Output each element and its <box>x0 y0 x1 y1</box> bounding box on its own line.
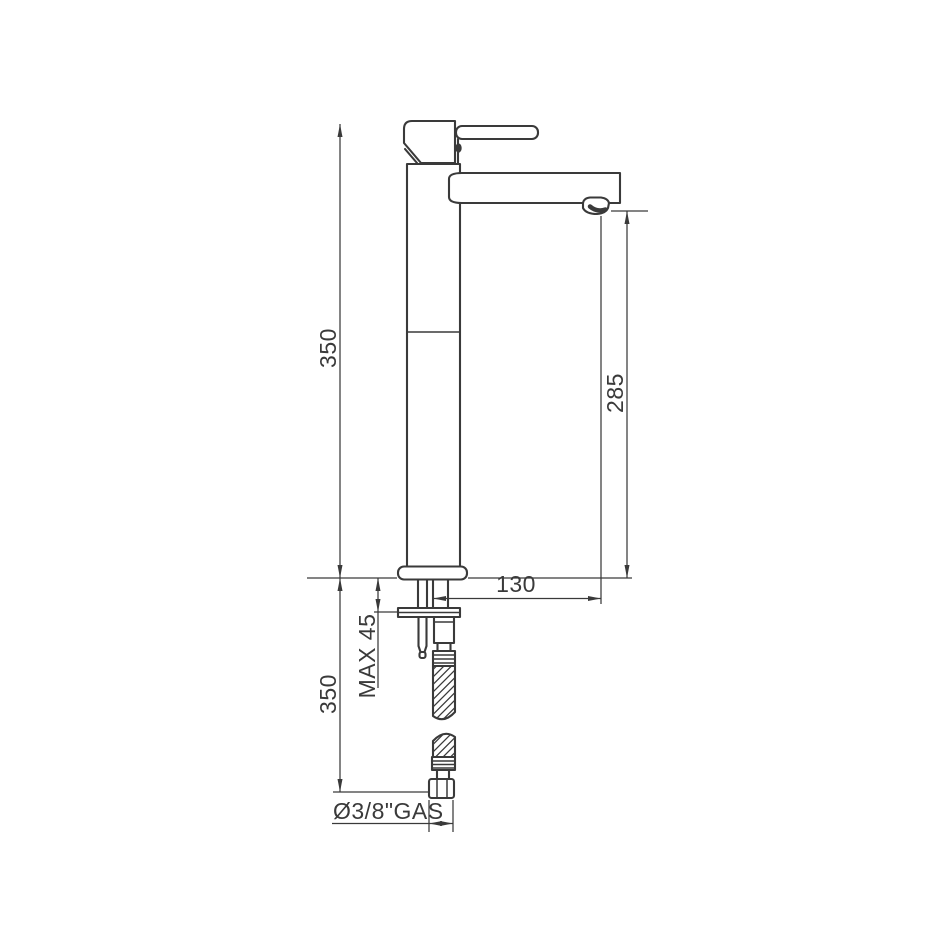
faucet-technical-drawing: 350 350 MAX 45 285 130 <box>0 0 950 950</box>
handle-assembly <box>404 121 538 164</box>
technical-drawing-page: 350 350 MAX 45 285 130 <box>0 0 950 950</box>
dim-label-outlet-height: 285 <box>602 373 628 413</box>
dim-label-thread: Ø3/8"GAS <box>333 798 444 824</box>
base-flange <box>398 567 467 580</box>
dimensions: 350 350 MAX 45 285 130 <box>307 124 648 832</box>
dim-label-spout-reach: 130 <box>496 571 536 597</box>
handle-lever <box>456 126 538 139</box>
supply-hose <box>429 617 455 798</box>
hose-connector-block <box>434 617 454 643</box>
dim-outlet-height: 285 <box>602 211 648 578</box>
handle-screw-dot <box>455 143 461 152</box>
dim-label-max-thickness: MAX 45 <box>354 614 380 699</box>
dim-label-hose-length: 350 <box>315 674 341 714</box>
dim-max-thickness: MAX 45 <box>354 578 398 698</box>
connector-step <box>438 643 451 651</box>
stud-tip <box>420 652 426 658</box>
braided-hose-lower <box>433 734 455 757</box>
braided-hose-upper <box>433 666 455 719</box>
dim-connection-thread: Ø3/8"GAS <box>332 798 453 832</box>
hose-neck <box>437 770 449 779</box>
hose-hex-nut <box>429 779 454 798</box>
dim-total-height: 350 <box>315 124 341 578</box>
hex-nut-outline <box>429 779 454 798</box>
faucet-body <box>407 164 460 567</box>
dim-label-total-height: 350 <box>315 328 341 368</box>
faucet <box>398 121 620 798</box>
aerator <box>583 198 609 215</box>
